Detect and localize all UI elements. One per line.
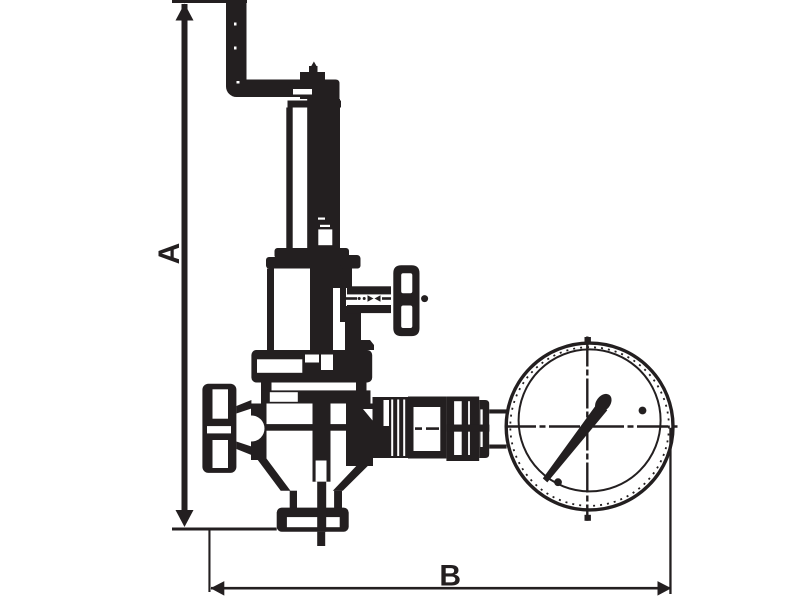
svg-text:A: A xyxy=(153,243,186,265)
svg-text:B: B xyxy=(439,559,461,592)
